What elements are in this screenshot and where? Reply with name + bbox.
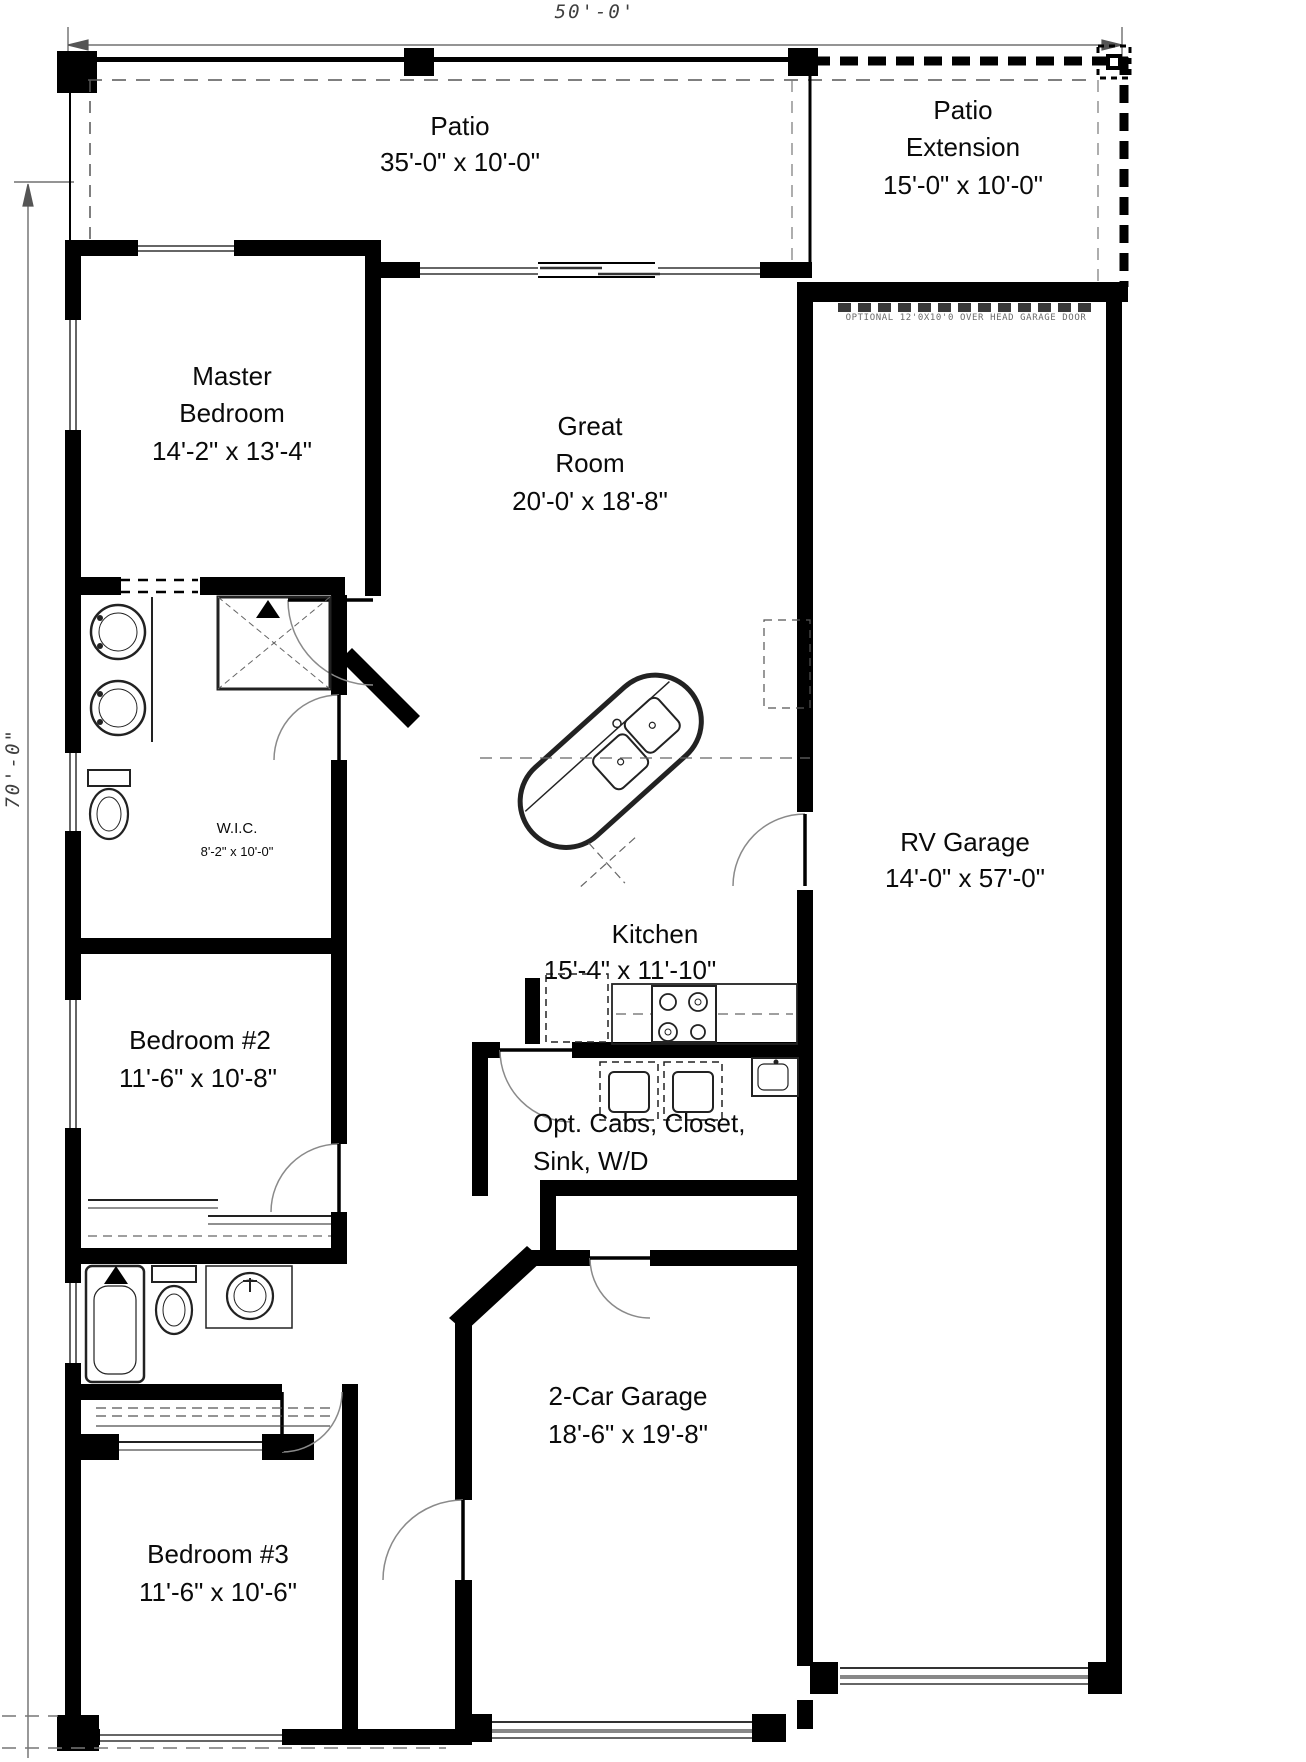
floor-plan-drawing [0, 0, 1306, 1762]
patio-extension-size: 15'-0" x 10'-0" [883, 171, 1043, 201]
vanity-sinks [91, 597, 152, 742]
great-room-size: 20'-0' x 18'-8" [512, 487, 668, 517]
patio-extension-label-1: Patio [933, 96, 992, 126]
overall-depth-dimension: 70'-0" [2, 728, 24, 809]
bedroom3-label: Bedroom #3 [147, 1540, 289, 1570]
two-car-garage-size: 18'-6" x 19'-8" [548, 1420, 708, 1450]
floor-plan: 50'-0' 70'-0" Patio 35'-0" x 10'-0" Pati… [0, 0, 1306, 1762]
opt-cabs-label-1: Opt. Cabs, Closet, [533, 1108, 745, 1139]
great-room-label-1: Great [557, 412, 622, 442]
kitchen-label: Kitchen [612, 920, 699, 950]
kitchen-island [501, 656, 756, 906]
fixtures [86, 597, 798, 1450]
great-room-label-2: Room [555, 449, 624, 479]
bedroom2-size: 11'-6" x 10'-8" [119, 1064, 277, 1094]
two-car-garage-label: 2-Car Garage [549, 1382, 708, 1412]
bedroom2-closet [88, 1200, 331, 1236]
wic-size: 8'-2" x 10'-0" [201, 845, 274, 860]
shower [218, 597, 330, 689]
toilet-2 [152, 1266, 196, 1334]
bedroom2-label: Bedroom #2 [129, 1026, 271, 1056]
garage-doors [492, 1668, 1088, 1738]
opt-cabs-label-2: Sink, W/D [533, 1146, 649, 1177]
bathtub [86, 1266, 144, 1382]
optional-garage-door-note: OPTIONAL 12'0X10'0 OVER HEAD GARAGE DOOR [846, 313, 1087, 323]
bedroom3-size: 11'-6" x 10'-6" [139, 1578, 297, 1608]
rv-garage-label: RV Garage [900, 828, 1030, 858]
master-bedroom-size: 14'-2" x 13'-4" [152, 437, 312, 467]
master-bedroom-label-2: Bedroom [179, 399, 285, 429]
toilet [88, 770, 130, 839]
patio-label: Patio [430, 112, 489, 142]
rv-garage-size: 14'-0" x 57'-0" [885, 864, 1045, 894]
overall-width-dimension: 50'-0' [555, 2, 636, 24]
wic-label: W.I.C. [217, 820, 258, 837]
optional-door-dashes [838, 303, 1091, 312]
patio-size: 35'-0" x 10'-0" [380, 148, 540, 178]
laundry-sink [752, 1058, 798, 1096]
sink-2 [206, 1266, 292, 1328]
patio-extension-label-2: Extension [906, 133, 1020, 163]
kitchen-size: 15'-4" x 11'-10" [544, 956, 716, 986]
master-bedroom-label-1: Master [192, 362, 271, 392]
